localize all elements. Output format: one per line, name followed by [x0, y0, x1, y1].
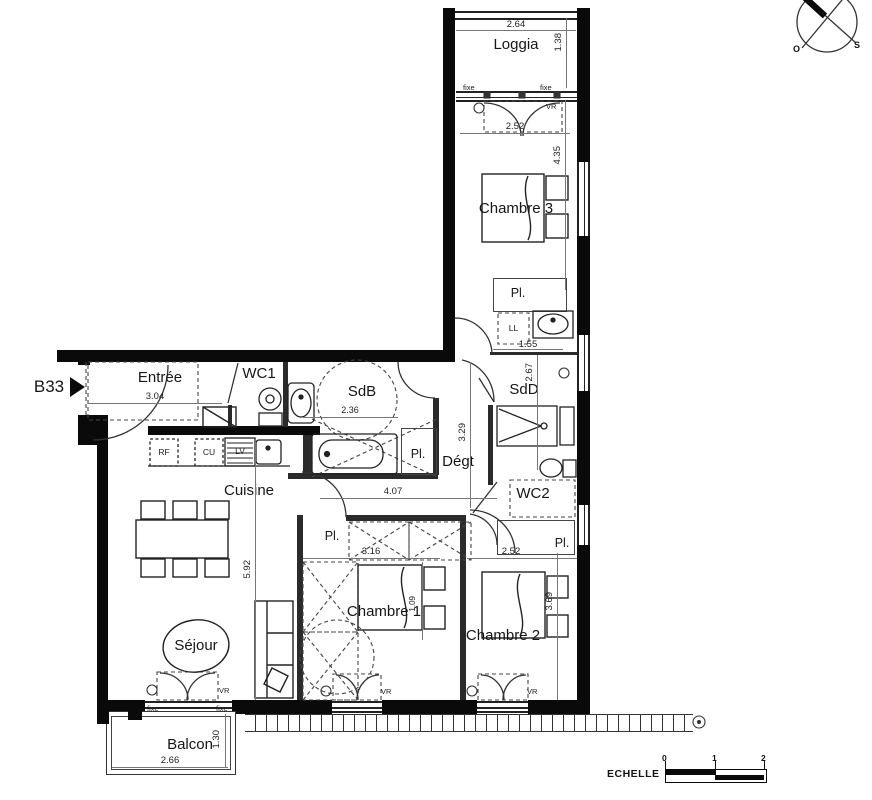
- dim-line: [225, 714, 226, 768]
- room-label-entree: Entrée: [116, 369, 204, 386]
- scale-tick-0: 0: [662, 753, 667, 763]
- window-markers: [147, 92, 705, 728]
- room-label-cuisine: Cuisine: [203, 482, 295, 499]
- window-label-vr: VR: [381, 687, 391, 696]
- dim-hall-width: 4.07: [373, 486, 413, 497]
- dim-line: [470, 362, 471, 508]
- dim-ch1-d: 1.09: [408, 596, 417, 612]
- window-label-vr: VR: [219, 686, 229, 695]
- scale-tick-1: 1: [712, 753, 717, 763]
- room-label-degt: Dégt: [430, 453, 486, 470]
- closet-label: Pl.: [493, 286, 543, 300]
- dim-sejour-depth: 5.92: [242, 560, 253, 579]
- dim-line: [565, 100, 566, 290]
- scale-title: ECHELLE: [607, 768, 661, 780]
- dim-line: [255, 440, 256, 700]
- dim-ch2-width: 2.52: [491, 546, 531, 557]
- dim-degt-depth: 3.29: [457, 423, 468, 442]
- dim-loggia-width: 2.64: [496, 19, 536, 30]
- dim-loggia-depth: 1.38: [553, 33, 564, 52]
- appliance-label-cu: CU: [195, 447, 223, 457]
- dim-line: [422, 562, 423, 640]
- unit-label: B33: [28, 377, 70, 397]
- dim-line: [456, 30, 576, 31]
- dim-line: [467, 558, 577, 559]
- dim-sink-width: 1.55: [508, 339, 548, 350]
- dim-line: [303, 558, 440, 559]
- compass-west-label: O: [793, 44, 800, 54]
- dim-ch3-depth: 4.35: [552, 146, 563, 165]
- dim-sdb-width: 2.36: [330, 405, 370, 415]
- dim-line: [557, 553, 558, 700]
- room-label-wc2: WC2: [505, 485, 561, 502]
- scale-bar-segment: [715, 775, 764, 780]
- window-label-fixe: fixe: [463, 83, 475, 92]
- floor-plan: Loggia Chambre 3 SdB SdD WC1 WC2 Entrée …: [0, 0, 872, 800]
- dim-ch1-width: 3.16: [351, 546, 391, 557]
- entry-arrow-icon: [70, 377, 85, 397]
- dim-line: [566, 18, 567, 88]
- dim-sdd-depth: 2.67: [524, 363, 535, 382]
- dim-line: [460, 133, 570, 134]
- compass-south-label: S: [854, 40, 860, 50]
- dim-ch2-depth: 3.69: [544, 592, 555, 611]
- window-label-fixe: fixe: [216, 704, 228, 713]
- dim-line: [303, 417, 398, 418]
- room-label-chambre3: Chambre 3: [455, 200, 577, 217]
- appliance-label-ll: LL: [498, 323, 529, 333]
- window-label-vr: VR: [527, 687, 537, 696]
- room-label-sejour: Séjour: [167, 637, 225, 654]
- compass-rose: [790, 0, 857, 52]
- room-label-sdb: SdB: [334, 383, 390, 400]
- room-label-wc1: WC1: [236, 365, 282, 382]
- appliance-label-rf: RF: [150, 447, 178, 457]
- appliance-label-lv: LV: [225, 446, 255, 456]
- scale-bar-segment: [666, 770, 716, 775]
- dim-ch3-window: 2.52: [495, 121, 535, 132]
- window-label-fixe: fixe: [147, 704, 159, 713]
- dim-balcon-width: 2.66: [150, 755, 190, 766]
- room-label-chambre2: Chambre 2: [448, 627, 558, 644]
- dim-balcon-depth: 1.30: [211, 730, 222, 749]
- scale-tick-2: 2: [761, 753, 766, 763]
- closet-label: Pl.: [401, 447, 435, 461]
- window-label-fixe: fixe: [540, 83, 552, 92]
- dim-line: [320, 498, 497, 499]
- dim-line: [537, 355, 538, 470]
- closet-label: Pl.: [316, 529, 348, 543]
- closet-label: Pl.: [545, 536, 579, 550]
- dim-line: [88, 403, 222, 404]
- window-label-vr: VR: [546, 102, 556, 111]
- dim-entree-width: 3.04: [135, 391, 175, 402]
- floorplan-linework: [0, 0, 872, 800]
- dim-line: [112, 767, 228, 768]
- room-label-sdd: SdD: [496, 381, 552, 398]
